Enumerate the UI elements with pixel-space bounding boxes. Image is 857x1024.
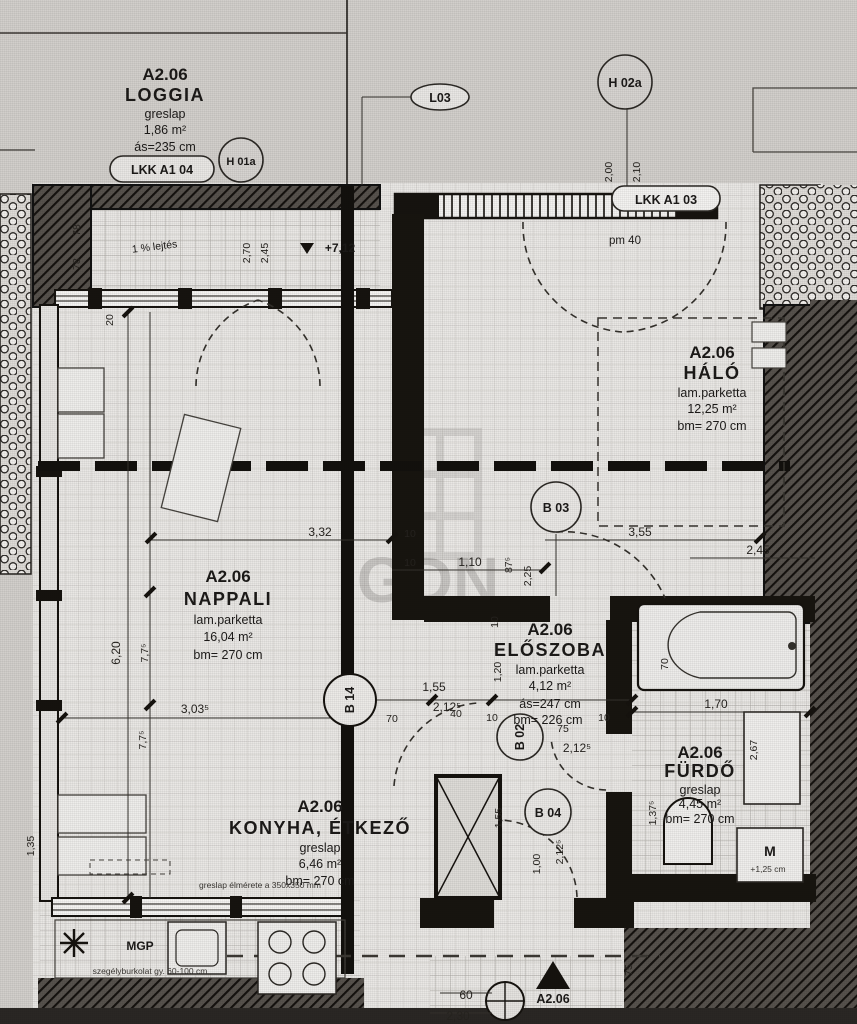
- halo-height: bm= 270 cm: [677, 419, 746, 433]
- dim-10a: 10: [404, 528, 416, 540]
- loggia-railing: [91, 185, 380, 209]
- eloszoba-area: 4,12 m²: [529, 679, 571, 693]
- dim-70: 70: [386, 713, 398, 725]
- entrance-code: A2.06: [536, 992, 569, 1006]
- dim-10b: 10: [404, 557, 416, 569]
- konyha-name: KONYHA, ÉTKEZŐ: [229, 817, 411, 838]
- dim-60: 60: [459, 988, 473, 1002]
- dim-10c: 10: [486, 712, 498, 724]
- dim-355: 3,55: [628, 525, 652, 539]
- entry-column: [486, 982, 524, 1020]
- floorplan-svg: GDN: [0, 0, 857, 1024]
- dim-332: 3,32: [308, 525, 332, 539]
- dim-3035: 3,03⁵: [181, 702, 209, 716]
- dim-775b: 7,7⁵: [137, 731, 149, 750]
- halo-nightstand: [752, 322, 786, 342]
- wall-corner-topleft: [33, 185, 91, 307]
- nappali-height: bm= 270 cm: [193, 648, 262, 662]
- dim-225: 2,25: [522, 566, 534, 587]
- nappali-area: 16,04 m²: [203, 630, 252, 644]
- dim-875: 87⁵: [503, 557, 515, 573]
- wall-insulation-right: [760, 185, 820, 309]
- plinth-note: szegélyburkolat gy. 60-100 cm: [93, 966, 208, 976]
- wall-left-tick3: [36, 700, 62, 711]
- tag-b03: B 03: [543, 501, 569, 515]
- washer-m-note: +1,25 cm: [750, 864, 785, 874]
- furdo-finish: greslap: [680, 783, 721, 797]
- dim-2125b: 2,12⁵: [563, 741, 591, 755]
- loggia-name: LOGGIA: [125, 85, 205, 105]
- wall-insulation-left: [0, 194, 31, 574]
- wall-halo-eloszoba: [424, 596, 550, 622]
- bathtub: [638, 604, 804, 690]
- dim-230: 2,30: [446, 1009, 470, 1023]
- window-band-kitchen: [52, 896, 348, 918]
- furdo-code: A2.06: [677, 743, 722, 762]
- dim-75: 75: [557, 723, 569, 735]
- eloszoba-height: ás=247 cm: [519, 697, 581, 711]
- dim-170: 1,70: [704, 697, 728, 711]
- konyha-code: A2.06: [297, 797, 342, 816]
- level-value: +7,12: [325, 241, 356, 255]
- halo-area: 12,25 m²: [687, 402, 736, 416]
- section-line-vertical: [341, 186, 354, 974]
- halo-finish: lam.parketta: [678, 386, 747, 400]
- dim-155: 1,55: [422, 680, 446, 694]
- nappali-code: A2.06: [205, 567, 250, 586]
- loggia-finish: greslap: [145, 107, 186, 121]
- pm40-note: pm 40: [609, 235, 641, 247]
- konyha-finish: greslap: [300, 841, 341, 855]
- eloszoba-code: A2.06: [527, 620, 572, 639]
- star-symbol: [60, 929, 88, 957]
- dim-75b: 75: [623, 964, 635, 976]
- nappali-finish: lam.parketta: [194, 613, 263, 627]
- dim-200: 2,00: [603, 162, 615, 183]
- tag-b14: B 14: [343, 687, 357, 713]
- dim-110: 1,10: [458, 555, 482, 569]
- dim-270: 2,70: [241, 243, 253, 264]
- tag-lkk04: LKK A1 04: [131, 163, 193, 177]
- tag-l03: L03: [429, 91, 451, 105]
- loggia-code: A2.06: [142, 65, 187, 84]
- wall-entry-right: [574, 898, 634, 928]
- halo-nightstand2: [752, 348, 786, 368]
- furdo-height: bm= 270 cm: [665, 812, 734, 826]
- wall-insulation-edge: [817, 185, 857, 311]
- dim-135: 1,35: [25, 836, 37, 857]
- wall-right-edge: [810, 300, 857, 1024]
- wall-left-tick2: [36, 590, 62, 601]
- loggia-height: ás=235 cm: [134, 140, 196, 154]
- mgp-label: MGP: [126, 939, 153, 953]
- floorplan-scan: GDN: [0, 0, 857, 1024]
- dim-78a: 78: [71, 224, 83, 236]
- konyha-area: 6,46 m²: [299, 857, 341, 871]
- loggia-area: 1,86 m²: [144, 123, 186, 137]
- eloszoba-height2: bm= 226 cm: [513, 713, 582, 727]
- dim-2125c: 2,12⁵: [554, 840, 566, 865]
- dim-78b: 78: [71, 258, 83, 270]
- furdo-name: FÜRDŐ: [664, 760, 736, 781]
- wall-entry-left: [420, 898, 494, 928]
- dim-10d: 10: [598, 712, 610, 724]
- tag-b02: B 02: [513, 724, 527, 750]
- tag-h01a: H 01a: [226, 156, 256, 168]
- dim-155b: 1,55: [493, 808, 505, 829]
- wall-left: [40, 305, 58, 901]
- eloszoba-name: ELŐSZOBA: [494, 639, 606, 660]
- dim-70b: 70: [659, 658, 671, 670]
- tag-lkk03: LKK A1 03: [635, 193, 697, 207]
- dim-20: 20: [104, 314, 116, 326]
- dim-100: 1,00: [531, 854, 543, 875]
- dim-620: 6,20: [109, 641, 123, 665]
- dim-10e: 10: [489, 616, 501, 628]
- nappali-name: NAPPALI: [184, 589, 272, 609]
- dim-120: 1,20: [492, 662, 504, 683]
- eloszoba-finish: lam.parketta: [516, 663, 585, 677]
- wall-furdo-lower: [606, 792, 632, 904]
- dim-267: 2,67: [748, 740, 760, 761]
- furdo-area: 4,45 m²: [679, 797, 721, 811]
- dim-245b: 2,45: [746, 543, 770, 557]
- halo-code: A2.06: [689, 343, 734, 362]
- dim-210: 2,10: [631, 162, 643, 183]
- kitchen-note: greslap élmérete a 350x350 mm: [199, 880, 321, 890]
- photo-edge-bottom: [0, 1008, 857, 1024]
- dim-775a: 7,7⁵: [139, 644, 151, 663]
- halo-name: HÁLÓ: [684, 362, 741, 383]
- dim-1375: 1,37⁵: [647, 801, 659, 826]
- dim-245: 2,45: [259, 243, 271, 264]
- dim-40: 40: [450, 708, 462, 720]
- washer-m-label: M: [764, 843, 776, 859]
- tag-h02a: H 02a: [608, 76, 642, 90]
- tag-b04: B 04: [535, 806, 561, 820]
- shaft: [436, 776, 500, 898]
